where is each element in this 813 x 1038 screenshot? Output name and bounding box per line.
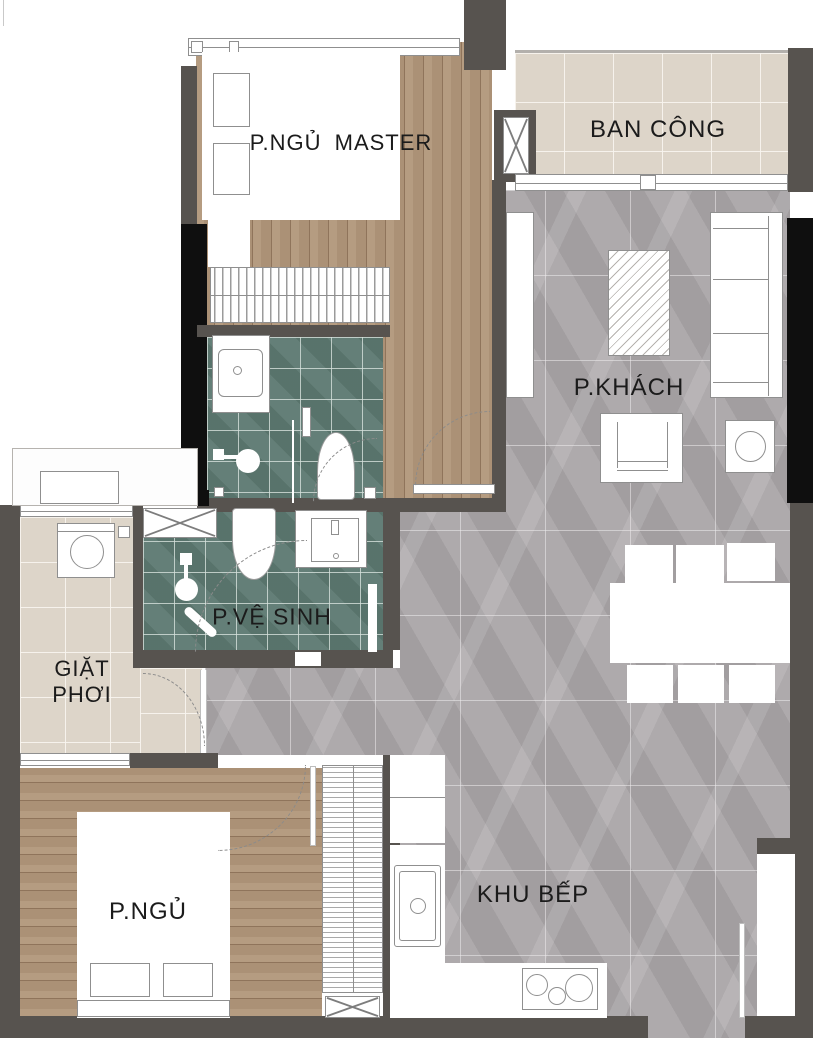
wall-top-corner (464, 0, 506, 70)
wall-bottom-right (745, 1016, 813, 1038)
pillow (90, 963, 150, 997)
side-table-lamp (725, 420, 775, 473)
bed-master-bench (208, 220, 250, 267)
room-label-kitchen: KHU BẾP (477, 881, 589, 909)
laundry-label-line2: PHƠI (52, 682, 112, 708)
structural-column (503, 117, 529, 174)
dining-chair (727, 543, 775, 581)
dining-chair (627, 665, 673, 703)
ac-ledge (12, 448, 198, 506)
washing-machine (57, 523, 115, 578)
entry-niche (757, 854, 795, 1016)
dining-chair (676, 545, 724, 583)
wall-right-gray (790, 503, 813, 855)
threshold-bath2-door (295, 652, 321, 666)
plan-edge-line (3, 0, 4, 26)
wardrobe-hanger-rack (210, 267, 390, 323)
window-bedroom2-top (20, 753, 130, 766)
shower-glass-master (292, 420, 294, 503)
ac-unit (40, 471, 119, 504)
wall-bath2-right (383, 512, 400, 650)
wall-balcony-right (788, 48, 813, 192)
shower-head-bath2 (175, 578, 198, 601)
room-label-bathroom: P.VỆ SINH (212, 604, 332, 631)
laundry-label-line1: GIẶT (52, 656, 112, 682)
wall-bath2-bottom (133, 650, 393, 668)
dining-chair (625, 545, 673, 583)
dining-table (610, 583, 790, 663)
wall-master-left-top (181, 66, 197, 224)
entry-door-leaf (739, 923, 745, 1018)
dining-chair (729, 665, 775, 703)
burner (565, 974, 593, 1002)
floor-drain (214, 487, 224, 497)
wall-bottom (0, 1016, 648, 1038)
wardrobe-end-box (325, 996, 380, 1018)
shower-shelf-master (302, 407, 311, 437)
wall-bath2-left (133, 505, 143, 668)
wall-corridor-right (492, 180, 506, 512)
detergent-box (118, 526, 130, 538)
tv-console (506, 212, 534, 398)
nightstand (213, 73, 250, 127)
wall-right-black (787, 218, 813, 503)
armchair (600, 413, 683, 483)
shower-head-master (236, 449, 260, 473)
room-label-master: P.NGỦ MASTER (250, 130, 433, 156)
nightstand (213, 143, 250, 195)
floor-plan: P.NGỦ MASTER P.VỆ SINH GIẶT PHƠI (0, 0, 813, 1038)
kitchen-sink (394, 865, 441, 947)
dining-chair (678, 665, 724, 703)
door-leaf-bath2 (368, 584, 377, 652)
shelf-bath2 (143, 508, 217, 538)
wall-balcony-rail (515, 50, 788, 53)
wardrobe-bedroom2 (322, 765, 383, 993)
pillow (163, 963, 213, 997)
sofa (710, 212, 783, 398)
window-laundry-top (20, 505, 133, 517)
kitchen-cabinet-upper (390, 755, 445, 843)
wall-bedroom2-top (130, 753, 218, 768)
balcony-floor (515, 53, 788, 175)
stove-cooktop (522, 968, 598, 1010)
door-leaf-bedroom2 (310, 766, 316, 846)
wall-entry-top (757, 838, 813, 854)
room-label-laundry: GIẶT PHƠI (52, 656, 112, 708)
vanity-sink-master (212, 335, 270, 413)
bed-headboard (77, 1000, 230, 1017)
room-label-balcony: BAN CÔNG (590, 116, 726, 144)
burner (526, 974, 548, 996)
room-label-living: P.KHÁCH (574, 374, 685, 402)
wall-left (0, 505, 20, 1038)
burner (548, 987, 566, 1005)
coffee-table (608, 250, 670, 356)
room-label-bedroom2: P.NGỦ (109, 898, 187, 926)
window-balcony-slider (515, 174, 788, 191)
wall-entry-right (795, 854, 813, 1038)
